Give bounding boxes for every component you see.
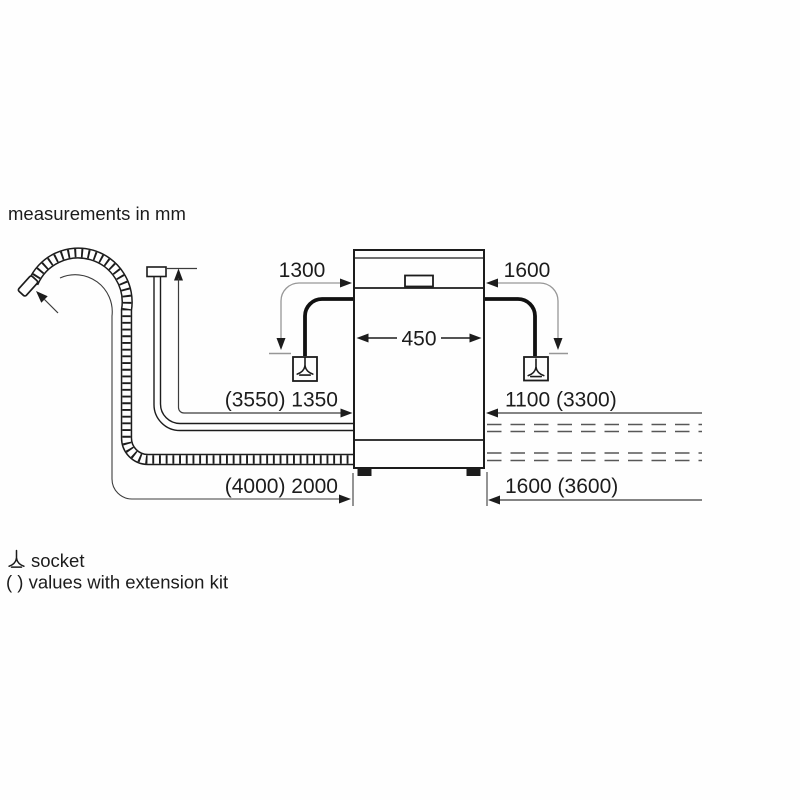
legend-extension-note: ( ) values with extension kit xyxy=(6,572,228,593)
control-display xyxy=(405,276,433,287)
diagram-canvas: measurements in mm (3550) 1350 (4000) 20… xyxy=(0,0,800,800)
supply-hose-fitting xyxy=(147,267,166,277)
dimension-label: 1300 xyxy=(279,259,326,282)
dimension-label: 1600 xyxy=(504,259,551,282)
dimension-label: (4000) 2000 xyxy=(225,475,338,498)
legend-socket-label: socket xyxy=(31,550,84,571)
appliance xyxy=(354,250,484,476)
foot-left xyxy=(358,468,372,476)
installation-diagram: measurements in mm (3550) 1350 (4000) 20… xyxy=(0,0,800,800)
dimension-label: 1100 (3300) xyxy=(505,389,617,412)
dimension-label: 450 xyxy=(401,328,436,351)
dimension-label: (3550) 1350 xyxy=(225,389,338,412)
socket-right xyxy=(524,357,548,381)
units-note: measurements in mm xyxy=(8,203,186,224)
dimension-label: 1600 (3600) xyxy=(505,475,618,498)
socket-left xyxy=(293,357,317,381)
foot-right xyxy=(467,468,481,476)
